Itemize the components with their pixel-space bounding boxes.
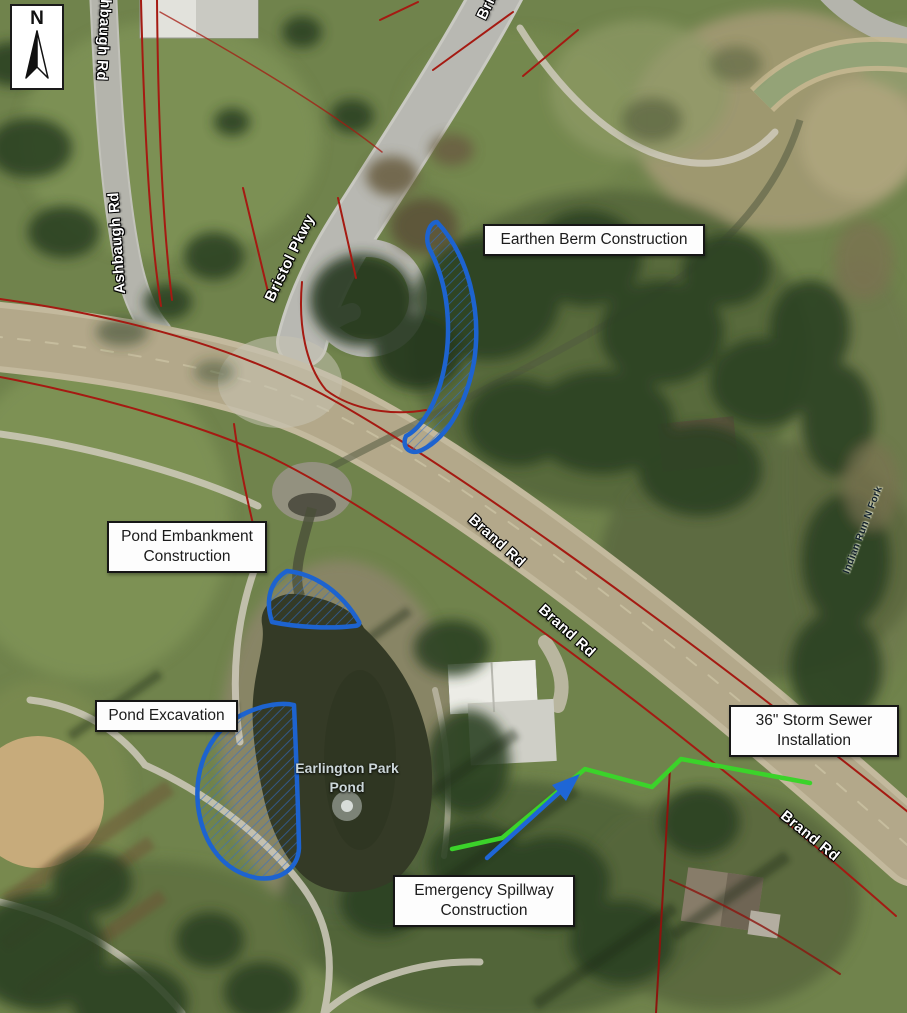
aerial-site-map: N Earthen Berm Construction Pond Embankm… bbox=[0, 0, 907, 1013]
north-arrow-icon bbox=[23, 28, 51, 82]
callout-earthen-berm: Earthen Berm Construction bbox=[483, 224, 705, 256]
north-label: N bbox=[30, 9, 44, 28]
callout-pond-excavation: Pond Excavation bbox=[95, 700, 238, 732]
callout-emergency-spillway: Emergency Spillway Construction bbox=[393, 875, 575, 927]
callout-pond-embankment: Pond Embankment Construction bbox=[107, 521, 267, 573]
water-label-earlington-park-pond: Earlington Park Pond bbox=[295, 759, 399, 797]
north-arrow: N bbox=[10, 4, 64, 90]
callout-storm-sewer: 36" Storm Sewer Installation bbox=[729, 705, 899, 757]
map-canvas bbox=[0, 0, 907, 1013]
